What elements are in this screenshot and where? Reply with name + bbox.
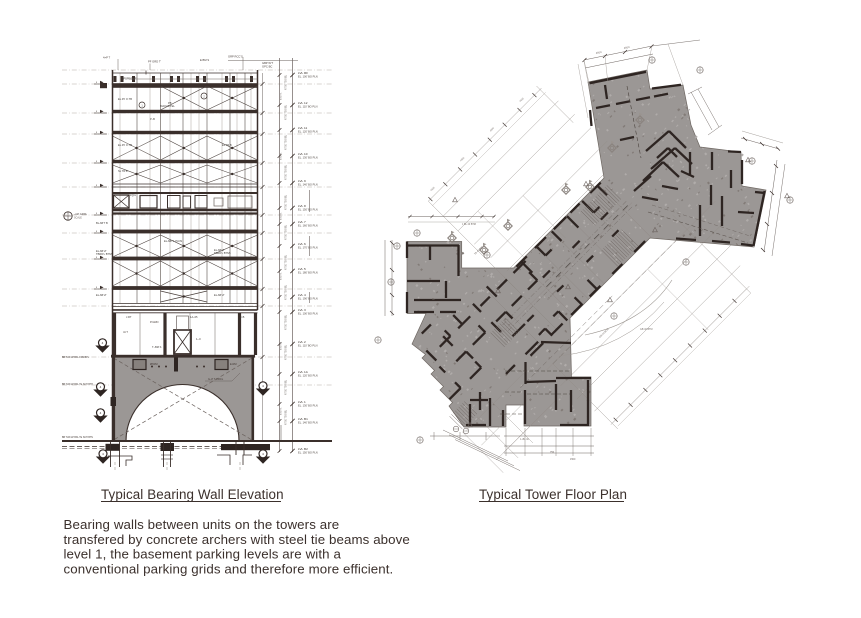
svg-text:1–0: 1–0 xyxy=(196,337,201,341)
svg-text:4500: 4500 xyxy=(595,50,602,55)
svg-text:LVL 5: LVL 5 xyxy=(298,267,306,271)
svg-text:TB 40 BM: TB 40 BM xyxy=(474,246,484,256)
svg-text:2: 2 xyxy=(203,95,205,98)
svg-text:AT 50 TO 8 BL: AT 50 TO 8 BL xyxy=(285,409,288,425)
svg-text:AT 50 TO 8 BL: AT 50 TO 8 BL xyxy=(285,254,288,270)
svg-text:AT 50 TO 8 BL: AT 50 TO 8 BL xyxy=(285,194,288,210)
svg-text:1 BL 40 BTM: 1 BL 40 BTM xyxy=(462,223,476,226)
svg-text:LVL 3: LVL 3 xyxy=(298,308,306,312)
svg-text:8: 8 xyxy=(96,161,98,163)
svg-text:level 1, the basement parking: level 1, the basement parking levels are… xyxy=(64,547,342,562)
svg-text:B 50 TL: B 50 TL xyxy=(281,272,283,280)
svg-text:EL AB’LT: EL AB’LT xyxy=(96,293,107,297)
svg-text:8: 8 xyxy=(96,257,98,259)
svg-text:AT 50 TO 8 BL: AT 50 TO 8 BL xyxy=(285,74,288,90)
svg-text:8: 8 xyxy=(96,111,98,113)
svg-text:EL. 190’ BO PLN: EL. 190’ BO PLN xyxy=(298,297,318,301)
svg-text:1: 1 xyxy=(141,104,143,107)
svg-text:LVL 2: LVL 2 xyxy=(298,340,306,344)
svg-text:EL 45’ O.TB: EL 45’ O.TB xyxy=(118,143,132,147)
svg-text:4500: 4500 xyxy=(490,127,496,133)
svg-text:GRP RCC’S: GRP RCC’S xyxy=(228,55,243,59)
svg-text:4500: 4500 xyxy=(430,186,436,192)
svg-text:Typical Bearing Wall Elevation: Typical Bearing Wall Elevation xyxy=(101,487,284,502)
svg-text:4500: 4500 xyxy=(460,157,466,163)
svg-text:GBP W’T: GBP W’T xyxy=(262,61,274,65)
svg-text:EL. 170’ BO PLN: EL. 170’ BO PLN xyxy=(298,246,318,250)
svg-text:AT 50 TO 8 BL: AT 50 TO 8 BL xyxy=(285,379,288,395)
svg-text:Bearing walls between units on: Bearing walls between units on the tower… xyxy=(64,517,340,532)
svg-text:BL AB’T B: BL AB’T B xyxy=(96,221,108,225)
svg-text:LVL 12: LVL 12 xyxy=(298,101,308,105)
svg-text:EL. 120’ BO PLN: EL. 120’ BO PLN xyxy=(298,374,318,378)
svg-text:P–B: P–B xyxy=(150,117,155,121)
svg-text:LVL B2: LVL B2 xyxy=(298,447,308,451)
svg-text:8: 8 xyxy=(96,231,98,233)
svg-text:GB 40 BLW: GB 40 BLW xyxy=(599,327,610,338)
svg-text:8: 8 xyxy=(96,287,98,289)
svg-text:BB TLB GP BKL TE SCH BTH: BB TLB GP BKL TE SCH BTH xyxy=(62,384,93,386)
svg-text:LVL 4: LVL 4 xyxy=(298,293,306,297)
svg-text:B 50 TL: B 50 TL xyxy=(281,342,283,350)
svg-text:EL. 130’ BO PLN: EL. 130’ BO PLN xyxy=(298,156,318,160)
svg-text:8: 8 xyxy=(96,132,98,134)
svg-text:E.RM: E.RM xyxy=(230,362,236,366)
svg-text:1–BL 40: 1–BL 40 xyxy=(520,438,529,441)
svg-text:EL. 160’ BO PLN: EL. 160’ BO PLN xyxy=(298,224,318,228)
svg-text:BB TLB GP BKL FDN BPL: BB TLB GP BKL FDN BPL xyxy=(62,357,90,359)
svg-text:AT 50 TO 8 BL: AT 50 TO 8 BL xyxy=(285,224,288,240)
svg-text:EL. 150’ BO PLN: EL. 150’ BO PLN xyxy=(298,208,318,212)
svg-text:B 50 TL: B 50 TL xyxy=(281,92,283,100)
svg-text:LVL 7: LVL 7 xyxy=(298,220,306,224)
svg-text:AT 50 TO 8 BL: AT 50 TO 8 BL xyxy=(285,344,288,360)
svg-text:EL. 100’ BO PLN: EL. 100’ BO PLN xyxy=(298,312,318,316)
svg-text:LVL RF: LVL RF xyxy=(298,71,308,75)
svg-text:LVL 6: LVL 6 xyxy=(298,242,306,246)
svg-text:AT 50 TO 8 BL: AT 50 TO 8 BL xyxy=(285,104,288,120)
svg-text:B 50 TL: B 50 TL xyxy=(281,212,283,220)
svg-text:PF GRD T’: PF GRD T’ xyxy=(148,60,161,64)
svg-text:AT 50 TO 8 BL: AT 50 TO 8 BL xyxy=(285,284,288,300)
svg-text:T–BM S: T–BM S xyxy=(152,345,162,349)
svg-text:G–P T CRCL: G–P T CRCL xyxy=(208,377,224,381)
svg-text:EL. 140’ BO PLN: EL. 140’ BO PLN xyxy=(298,183,318,187)
svg-text:EL. 100’ BO PLN: EL. 100’ BO PLN xyxy=(298,75,318,79)
svg-text:4×P T: 4×P T xyxy=(103,56,111,60)
svg-text:1A–05: 1A–05 xyxy=(190,315,198,319)
svg-text:E BM S: E BM S xyxy=(200,58,209,62)
svg-text:EL. 110’ BO PLN: EL. 110’ BO PLN xyxy=(298,344,318,348)
svg-text:EL. 110’ BO PLN: EL. 110’ BO PLN xyxy=(298,105,318,109)
svg-text:750: 750 xyxy=(550,451,555,454)
svg-text:SL TR’B: SL TR’B xyxy=(118,169,128,173)
svg-text:–GP GRDL: –GP GRDL xyxy=(74,212,88,216)
svg-text:4×T: 4×T xyxy=(123,330,128,334)
svg-text:SCALE: SCALE xyxy=(74,217,82,220)
svg-text:8: 8 xyxy=(96,185,98,187)
svg-text:LVL B1: LVL B1 xyxy=(298,417,308,421)
svg-text:B 50 TL: B 50 TL xyxy=(281,152,283,160)
svg-text:EL. 130’ BO PLN: EL. 130’ BO PLN xyxy=(298,404,318,408)
svg-text:EL. 150’ BO PLN: EL. 150’ BO PLN xyxy=(298,451,318,455)
svg-text:GPC BC: GPC BC xyxy=(262,65,272,69)
svg-text:#@&: #@& xyxy=(130,193,136,197)
svg-text:P.GRD: P.GRD xyxy=(150,320,159,324)
svg-text:4500: 4500 xyxy=(520,97,526,103)
svg-text:LVL 9: LVL 9 xyxy=(298,179,306,183)
svg-text:conventional parking grids and: conventional parking grids and therefore… xyxy=(64,561,394,576)
svg-text:EL. 180’ BO PLN: EL. 180’ BO PLN xyxy=(298,271,318,275)
svg-text:EL AB’LT: EL AB’LT xyxy=(214,293,225,297)
svg-text:8: 8 xyxy=(96,82,98,84)
svg-text:J.RT: J.RT xyxy=(126,315,132,319)
svg-text:LVL 10: LVL 10 xyxy=(298,152,308,156)
svg-text:LVL 11: LVL 11 xyxy=(298,126,308,130)
svg-text:LVL 8: LVL 8 xyxy=(298,204,306,208)
svg-text:EL TR B: EL TR B xyxy=(222,143,232,147)
svg-text:BB TLB GP BKL TE SCH BTN: BB TLB GP BKL TE SCH BTN xyxy=(62,437,93,439)
svg-text:LVL 1A: LVL 1A xyxy=(298,370,309,374)
svg-text:B 50 TL: B 50 TL xyxy=(281,407,283,415)
svg-text:AT 50 TO 8 BL: AT 50 TO 8 BL xyxy=(285,314,288,330)
svg-text:BLDG’B TEL: BLDG’B TEL xyxy=(160,104,175,108)
svg-text:GB 40 BTM: GB 40 BTM xyxy=(640,328,653,331)
svg-text:Typical Tower Floor Plan: Typical Tower Floor Plan xyxy=(479,487,627,502)
svg-text:TBRD’L BTNS: TBRD’L BTNS xyxy=(214,251,231,255)
svg-text:EL. 140’ BO PLN: EL. 140’ BO PLN xyxy=(298,421,318,425)
svg-text:AT 50 TO 8 BL: AT 50 TO 8 BL xyxy=(285,134,288,150)
svg-text:C.B: C.B xyxy=(240,315,245,319)
svg-text:EL 45’ O.TB: EL 45’ O.TB xyxy=(118,97,132,101)
svg-text:4500: 4500 xyxy=(623,45,630,50)
svg-text:AT 50 TO 8 BL: AT 50 TO 8 BL xyxy=(285,164,288,180)
svg-text:#P.RM: #P.RM xyxy=(150,362,158,366)
svg-text:1500: 1500 xyxy=(570,458,576,461)
svg-text:transfered by concrete archers: transfered by concrete archers with stee… xyxy=(64,532,410,547)
svg-text:TBRD’L BTNS: TBRD’L BTNS xyxy=(96,252,113,256)
svg-text:8: 8 xyxy=(96,213,98,215)
svg-text:LVL 1: LVL 1 xyxy=(298,400,306,404)
svg-text:EL ABT’L PLNS: EL ABT’L PLNS xyxy=(164,239,182,243)
svg-text:EL. 120’ BO PLN: EL. 120’ BO PLN xyxy=(298,130,318,134)
